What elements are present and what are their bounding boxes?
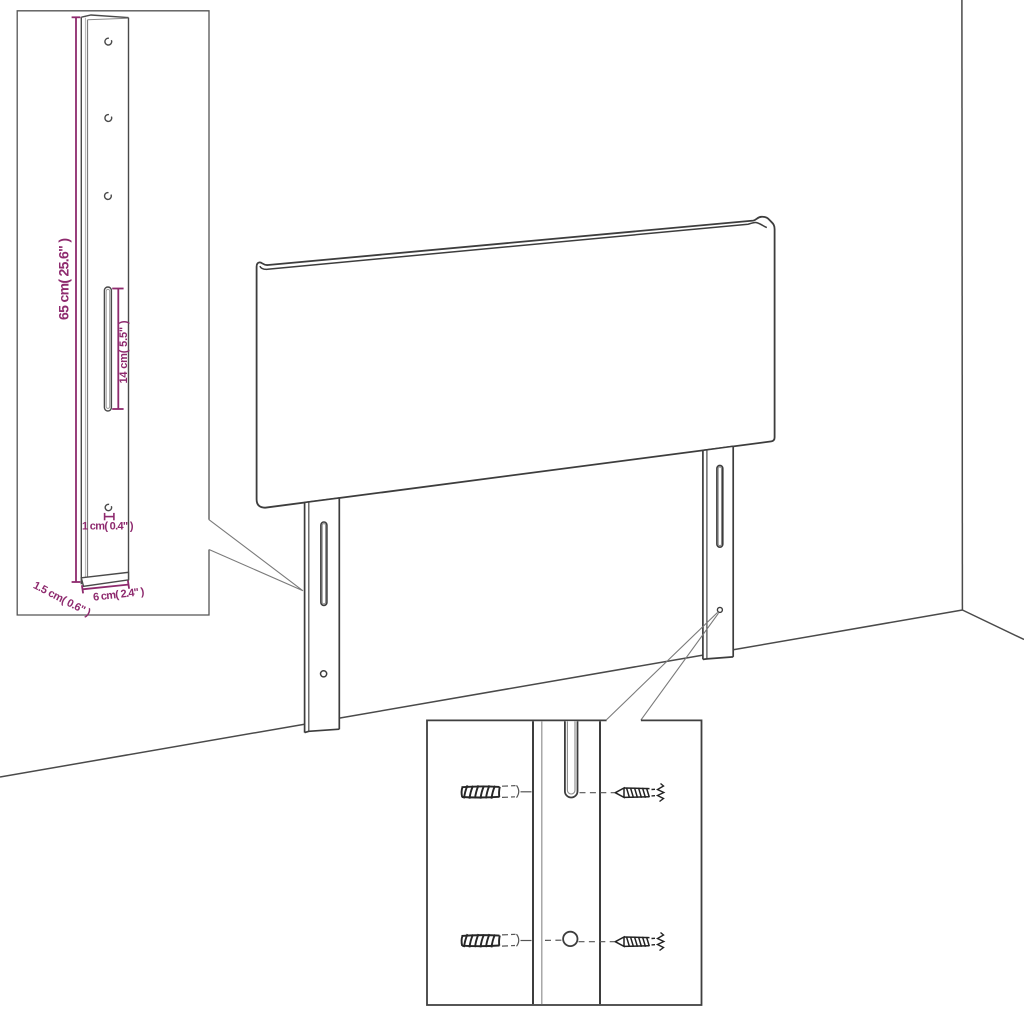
svg-text:14 cm( 5.5" ): 14 cm( 5.5" ) bbox=[118, 320, 130, 383]
svg-text:6 cm( 2.4" ): 6 cm( 2.4" ) bbox=[92, 586, 145, 604]
svg-text:65 cm( 25.6" ): 65 cm( 25.6" ) bbox=[55, 238, 71, 320]
svg-text:1 cm( 0.4" ): 1 cm( 0.4" ) bbox=[82, 521, 134, 533]
